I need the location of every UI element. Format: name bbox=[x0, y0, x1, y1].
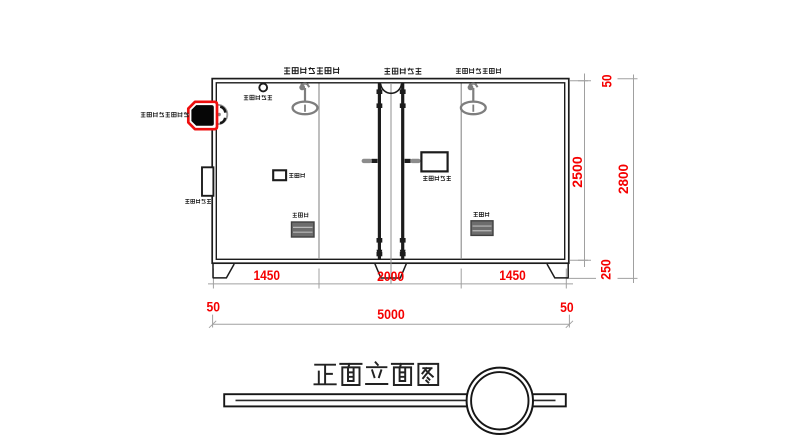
svg-text:50: 50 bbox=[206, 300, 220, 316]
svg-text:1450: 1450 bbox=[254, 268, 281, 284]
svg-text:2500: 2500 bbox=[570, 156, 586, 188]
svg-text:50: 50 bbox=[600, 74, 616, 87]
svg-text:2800: 2800 bbox=[616, 164, 632, 194]
svg-text:2000: 2000 bbox=[377, 269, 404, 285]
svg-text:5000: 5000 bbox=[377, 307, 405, 323]
svg-text:250: 250 bbox=[599, 259, 615, 280]
svg-text:50: 50 bbox=[560, 300, 574, 316]
svg-text:1450: 1450 bbox=[499, 268, 526, 284]
